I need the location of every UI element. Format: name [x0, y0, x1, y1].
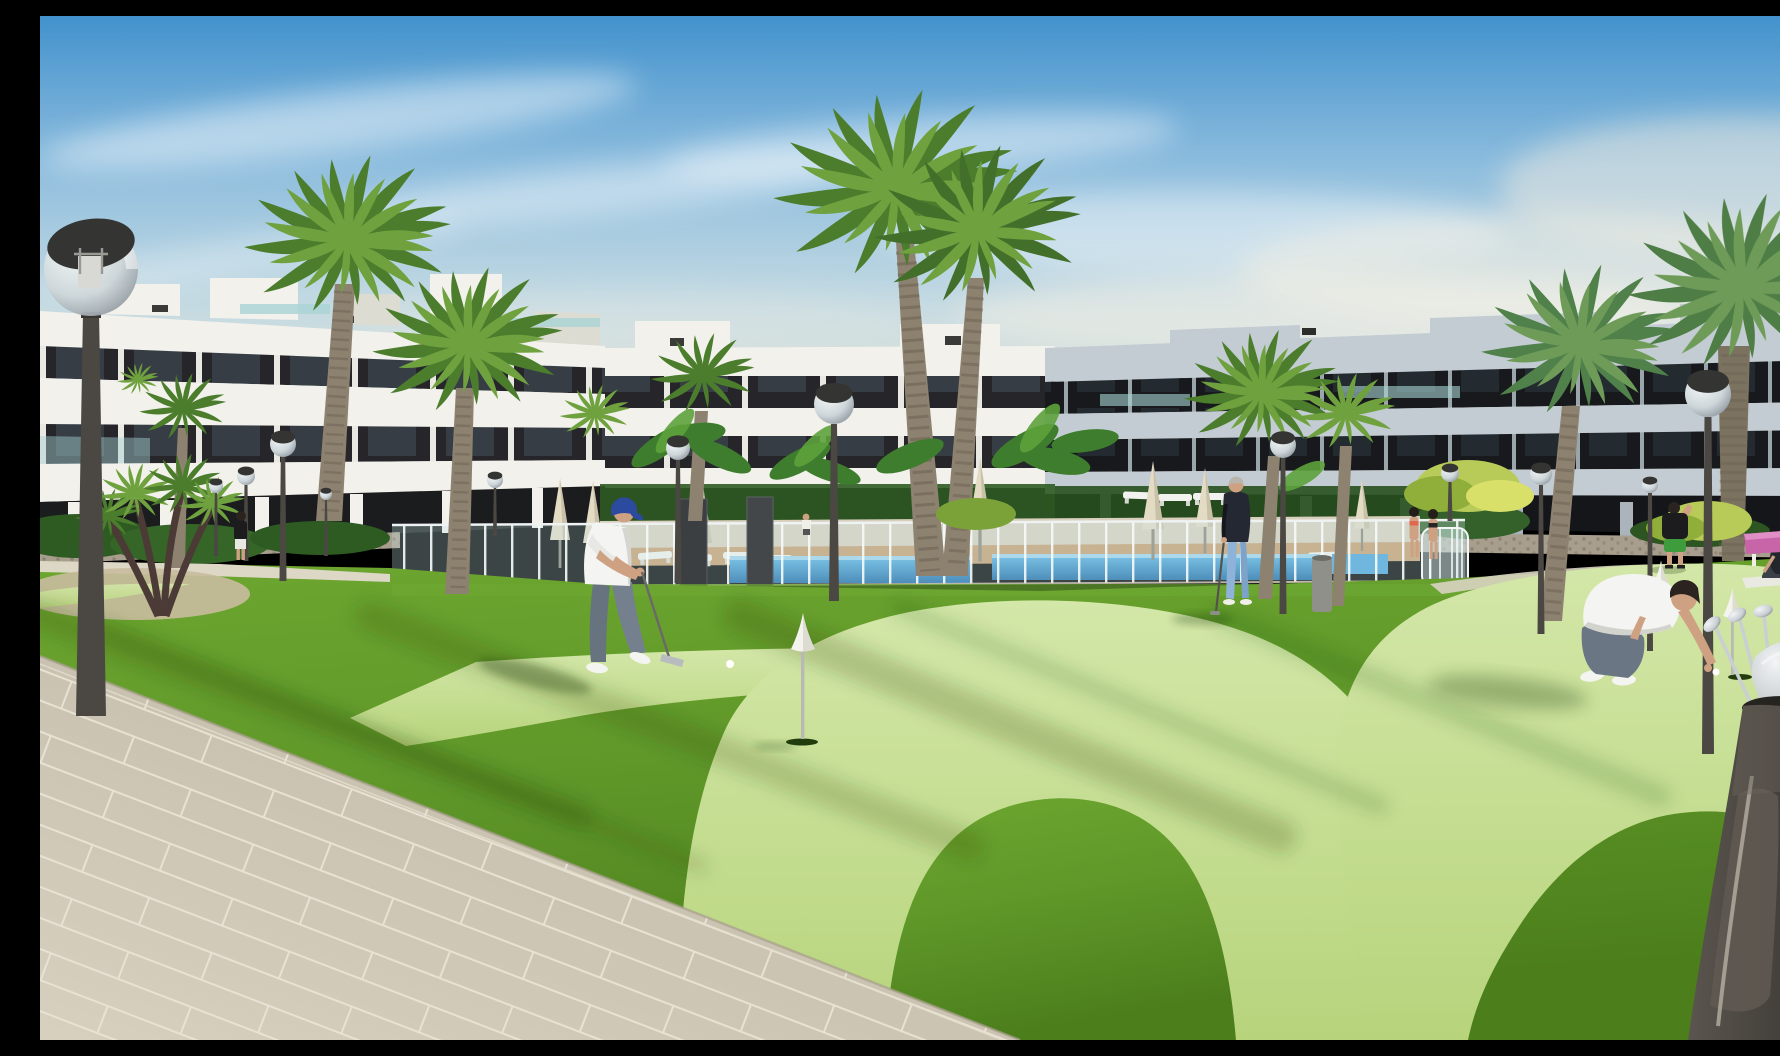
render-canvas — [40, 16, 1780, 1040]
waste-bin — [1312, 555, 1332, 612]
architectural-render: Photorealistic architectural rendering o… — [40, 16, 1780, 1040]
totem-pillar — [747, 497, 773, 587]
golf-ball — [726, 660, 734, 668]
golf-ball — [1713, 669, 1720, 676]
